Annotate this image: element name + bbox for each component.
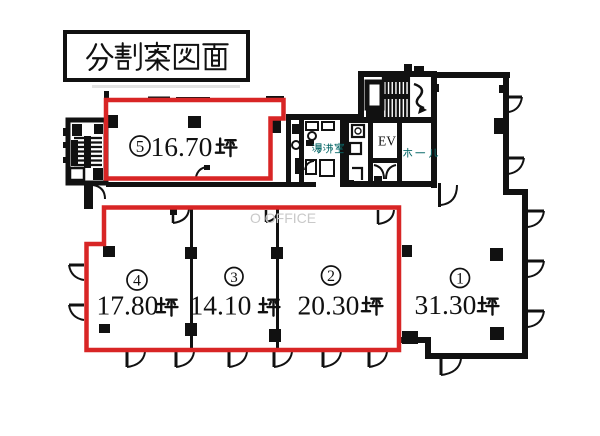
svg-text:20.30: 20.30 <box>298 290 360 321</box>
svg-text:4: 4 <box>133 273 141 290</box>
svg-text:EV: EV <box>378 134 396 149</box>
svg-text:14.10: 14.10 <box>190 290 252 321</box>
svg-text:16.70: 16.70 <box>151 131 213 162</box>
svg-text:31.30: 31.30 <box>415 289 477 320</box>
svg-text:1: 1 <box>456 271 464 288</box>
svg-text:2: 2 <box>327 268 335 285</box>
svg-text:O OFFICE: O OFFICE <box>250 210 316 226</box>
svg-text:5: 5 <box>136 137 145 156</box>
svg-text:17.80: 17.80 <box>97 290 159 321</box>
svg-text:3: 3 <box>230 270 238 286</box>
